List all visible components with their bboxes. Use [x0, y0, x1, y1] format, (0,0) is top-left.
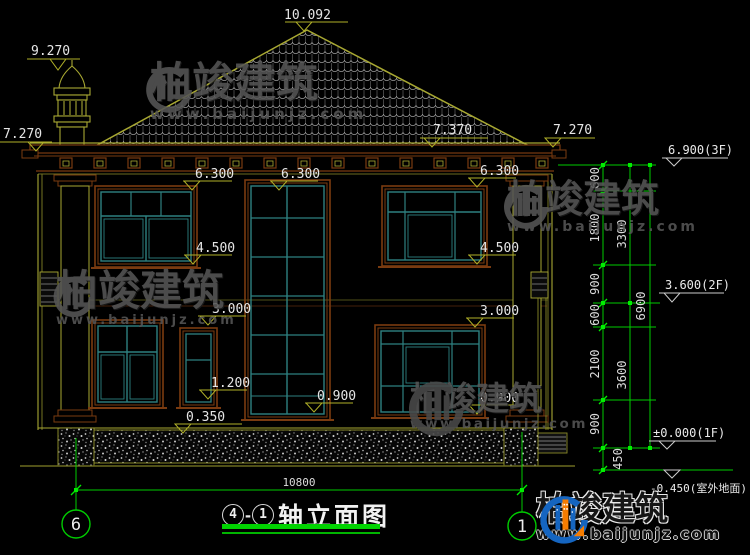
chimney — [54, 60, 90, 149]
window-1f-right — [371, 325, 489, 418]
elevation-label-roof-slope: 7.370 — [433, 123, 472, 138]
elevation-label-4500-right: 4.500 — [480, 241, 519, 256]
marker-3000-right — [466, 318, 514, 327]
title-underline-thin — [222, 532, 380, 534]
marker-0900-right — [468, 405, 516, 414]
elevation-label-3000-right: 3.000 — [480, 304, 519, 319]
marker-1200 — [199, 390, 247, 399]
title-underline — [222, 524, 380, 529]
dim-450: 450 — [611, 448, 625, 470]
marker-0900-center — [305, 403, 353, 412]
elevation-label-eave-right: 7.270 — [553, 123, 592, 138]
footer-brand-logo: 柏竣建筑 www.baijunjz.com — [536, 492, 721, 543]
dim-600-b: 600 — [588, 304, 602, 326]
window-1f-small — [176, 328, 221, 408]
elevation-label-4500-left: 4.500 — [196, 241, 235, 256]
title-axis-to: 1 — [252, 504, 274, 526]
marker-3f — [662, 158, 728, 166]
marker-3000-left — [198, 316, 246, 325]
axis-number-left: 6 — [71, 515, 81, 535]
elevation-label-6300-right: 6.300 — [480, 164, 519, 179]
wall-vent-left — [40, 272, 58, 306]
pilaster-right — [506, 175, 548, 422]
axis-bubble-right: 1 — [508, 512, 536, 540]
window-1f-left — [88, 320, 167, 408]
window-2f-left — [91, 186, 201, 268]
dim-3600: 3600 — [615, 361, 629, 390]
wall-vent-right — [531, 272, 548, 298]
marker-2f — [659, 293, 724, 302]
horizontal-dim-label: 10800 — [282, 476, 315, 489]
marker-peak — [285, 22, 348, 31]
elevation-label-6300-left: 6.300 — [195, 167, 234, 182]
elevation-label-3000-left: 3.000 — [212, 302, 251, 317]
elevation-label-0900-right: 0.900 — [480, 391, 519, 406]
title-axis-from: 4 — [222, 504, 244, 526]
elevation-label-chimney: 9.270 — [31, 44, 70, 59]
cad-elevation-drawing: 10.092 9.270 7.270 7.370 7.270 6.300 6.3… — [0, 0, 750, 555]
elevation-label-eave-left: 7.270 — [3, 127, 42, 142]
level-label-1f: ±0.000(1F) — [653, 426, 725, 440]
level-label-3f: 6.900(3F) — [668, 143, 733, 157]
dim-1800: 1800 — [588, 214, 602, 243]
pilaster-left — [54, 175, 96, 422]
axis-number-right: 1 — [517, 517, 527, 537]
elevation-label-1200: 1.200 — [211, 376, 250, 391]
dim-600-a: 600 — [588, 167, 602, 189]
dim-900-b: 900 — [588, 413, 602, 435]
level-label-2f: 3.600(2F) — [665, 278, 730, 292]
elevation-label-peak: 10.092 — [284, 8, 331, 23]
axis-bubble-left: 6 — [62, 510, 90, 538]
dim-2100: 2100 — [588, 350, 602, 379]
title-separator: - — [245, 505, 251, 526]
elevation-label-0350: 0.350 — [186, 410, 225, 425]
elevation-label-0900-center: 0.900 — [317, 389, 356, 404]
brand-logo-icon — [536, 492, 590, 548]
marker-ground — [664, 470, 680, 478]
vertical-dimension-labels: 600 1800 900 600 2100 900 450 3300 3600 … — [588, 167, 648, 470]
drawing-canvas: 10.092 9.270 7.270 7.370 7.270 6.300 6.3… — [0, 0, 750, 555]
outdoor-steps — [537, 433, 567, 453]
plinth — [20, 428, 575, 466]
dim-900-a: 900 — [588, 273, 602, 295]
dim-3300: 3300 — [615, 220, 629, 249]
floor-level-labels: 6.900(3F) 3.600(2F) ±0.000(1F) -0.450(室外… — [650, 143, 747, 495]
elevation-label-6300-center: 6.300 — [281, 167, 320, 182]
dim-6900-total: 6900 — [634, 292, 648, 321]
